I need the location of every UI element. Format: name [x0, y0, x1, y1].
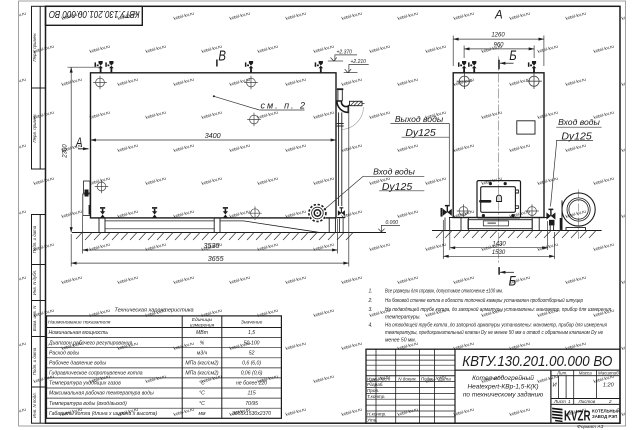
svg-text:°С: °С [199, 391, 205, 397]
svg-text:1: 1 [568, 399, 571, 404]
svg-text:Габариты котла (длина х ширина: Габариты котла (длина х ширина х высота) [49, 411, 157, 417]
svg-text:температуры, предохранительный: температуры, предохранительный клапан Dу… [385, 329, 603, 336]
svg-text:+2.210: +2.210 [351, 59, 367, 65]
svg-text:мм: мм [199, 411, 206, 417]
svg-text:Пров.: Пров. [367, 388, 379, 393]
svg-text:Перв. примен.: Перв. примен. [32, 113, 37, 142]
svg-text:На боковой стенке котла в обла: На боковой стенке котла в области топочн… [385, 297, 583, 304]
svg-text:4.: 4. [369, 323, 373, 329]
svg-text:3535: 3535 [204, 241, 221, 250]
svg-text:2.: 2. [368, 298, 373, 304]
svg-text:Температура воды (вход/выход): Температура воды (вход/выход) [49, 401, 127, 407]
svg-text:0,06 (0,6): 0,06 (0,6) [241, 371, 263, 377]
svg-text:KVZR: KVZR [564, 408, 591, 424]
svg-text:м3/ч: м3/ч [197, 350, 208, 356]
svg-text:1:20: 1:20 [603, 383, 615, 389]
svg-text:960: 960 [493, 42, 504, 48]
svg-text:Вход воды: Вход воды [373, 167, 415, 177]
svg-text:Подп.: Подп. [421, 376, 433, 381]
svg-text:по техническому заданию: по техническому заданию [463, 391, 543, 399]
svg-text:Листов: Листов [578, 399, 596, 404]
svg-text:Номинальная мощность: Номинальная мощность [49, 330, 109, 336]
svg-text:Вход воды: Вход воды [558, 117, 600, 127]
svg-text:Единицы: Единицы [192, 317, 213, 323]
svg-text:Техническая характеристика: Техническая характеристика [114, 307, 193, 313]
svg-text:Т.контр.: Т.контр. [367, 394, 386, 399]
svg-text:Гидравлическое сопротивление к: Гидравлическое сопротивление котла [49, 371, 143, 377]
svg-text:1430: 1430 [492, 241, 506, 247]
svg-text:Масштаб: Масштаб [598, 370, 619, 375]
svg-text:Изм.: Изм. [367, 376, 377, 381]
svg-text:Дата: Дата [438, 376, 452, 381]
svg-text:Температура уходящих газов: Температура уходящих газов [49, 381, 121, 387]
svg-text:3655х1530х2370: 3655х1530х2370 [232, 411, 271, 417]
svg-text:Формат А3: Формат А3 [577, 424, 604, 430]
svg-text:Б: Б [509, 47, 516, 63]
svg-text:На подводящей трубе котла, д: На подводящей трубе котла, до запорной а… [385, 306, 611, 313]
svg-text:не более 220: не более 220 [236, 381, 267, 387]
svg-text:115: 115 [248, 391, 256, 397]
svg-text:0.000: 0.000 [386, 220, 399, 226]
svg-text:температуры.: температуры. [385, 314, 421, 320]
svg-text:1260: 1260 [491, 33, 505, 39]
svg-text:Heatexpert-КВр-1,5-К(К): Heatexpert-КВр-1,5-К(К) [467, 383, 538, 390]
svg-text:Лист: Лист [378, 376, 391, 381]
svg-text:Перв. примен.: Перв. примен. [32, 32, 37, 61]
svg-text:Все размеры для справок, допус: Все размеры для справок, допустимое откл… [385, 289, 503, 295]
svg-text:МВт: МВт [196, 330, 208, 336]
svg-text:1530: 1530 [492, 250, 506, 256]
svg-text:Инв. N дубл.: Инв. N дубл. [32, 270, 37, 295]
svg-text:Максимальная рабочая температу: Максимальная рабочая температура воды [49, 391, 154, 397]
svg-text:Подп. и дата: Подп. и дата [32, 225, 37, 253]
svg-text:2: 2 [608, 399, 612, 404]
svg-text:°С: °С [199, 401, 205, 407]
svg-text:70/95: 70/95 [245, 401, 258, 407]
svg-text:Разраб.: Разраб. [367, 382, 384, 387]
svg-text:КОТЕЛЬНЫЙ: КОТЕЛЬНЫЙ [592, 409, 620, 414]
svg-text:3400: 3400 [205, 131, 221, 140]
svg-text:измерения: измерения [190, 324, 215, 329]
svg-text:Утв.: Утв. [367, 418, 377, 423]
svg-text:%: % [200, 340, 205, 346]
svg-text:+2.370: +2.370 [337, 50, 353, 56]
svg-text:МПа (кгс/см2): МПа (кгс/см2) [185, 371, 219, 377]
svg-text:Выход воды: Выход воды [395, 114, 444, 124]
svg-text:2300: 2300 [63, 144, 69, 159]
svg-text:1,5: 1,5 [248, 330, 255, 336]
svg-text:Лит.: Лит. [556, 370, 567, 375]
svg-text:3655: 3655 [208, 254, 225, 263]
svg-text:И: И [553, 383, 557, 389]
svg-text:А: А [494, 10, 503, 22]
svg-text:Лист: Лист [553, 399, 566, 404]
svg-text:°С: °С [199, 381, 205, 387]
svg-text:Котел водогрейный: Котел водогрейный [472, 374, 534, 382]
svg-text:Значение: Значение [241, 320, 263, 326]
svg-text:Наименование показателя: Наименование показателя [48, 320, 111, 326]
svg-text:Диапазон рабочего регулировани: Диапазон рабочего регулирования [48, 340, 132, 346]
svg-text:КВТУ.130.201.00.000 ВО: КВТУ.130.201.00.000 ВО [462, 354, 612, 370]
svg-text:Масса: Масса [579, 370, 593, 375]
svg-text:Подп. и дата: Подп. и дата [32, 347, 37, 375]
svg-text:Взам. инв. N: Взам. инв. N [32, 305, 37, 331]
svg-text:В: В [218, 48, 226, 64]
svg-text:менее 50 мм.: менее 50 мм. [385, 338, 416, 344]
svg-text:3.: 3. [369, 307, 373, 313]
svg-text:0,6 (6,0): 0,6 (6,0) [242, 361, 261, 367]
svg-text:Н.контр.: Н.контр. [367, 412, 386, 417]
svg-text:Расход воды: Расход воды [49, 350, 79, 356]
svg-text:А: А [75, 134, 83, 150]
svg-text:Инв. N подл.: Инв. N подл. [32, 392, 37, 418]
svg-text:52: 52 [249, 350, 255, 356]
svg-text:ЗАВОД РЭП: ЗАВОД РЭП [592, 414, 617, 419]
svg-text:КВТУ.130.201.00.000 ВО: КВТУ.130.201.00.000 ВО [49, 8, 140, 20]
svg-text:Рабочее давление воды: Рабочее давление воды [49, 361, 106, 367]
svg-text:50-100: 50-100 [244, 340, 260, 346]
svg-text:МПа (кгс/см2): МПа (кгс/см2) [185, 361, 219, 367]
svg-text:1.: 1. [369, 289, 373, 295]
svg-text:Б: Б [509, 272, 517, 288]
svg-text:На отводящей трубе котла ,до з: На отводящей трубе котла ,до запорной ар… [385, 322, 607, 329]
svg-text:N докум.: N докум. [398, 376, 417, 381]
